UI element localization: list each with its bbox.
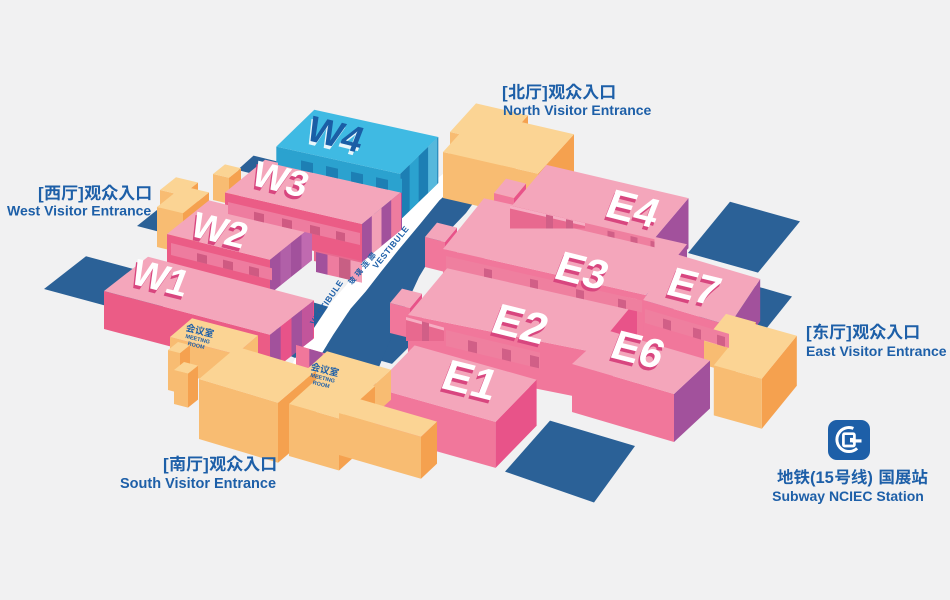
svg-text:North Visitor Entrance: North Visitor Entrance bbox=[503, 102, 652, 118]
svg-text:South Visitor Entrance: South Visitor Entrance bbox=[120, 476, 276, 492]
svg-text:[: [ bbox=[806, 323, 812, 342]
svg-text:]: ] bbox=[846, 323, 852, 342]
svg-text:]: ] bbox=[542, 83, 548, 102]
svg-text:): ) bbox=[867, 469, 873, 487]
svg-text:[: [ bbox=[38, 184, 44, 203]
svg-text:(15: (15 bbox=[810, 469, 834, 487]
svg-text:[: [ bbox=[502, 83, 508, 102]
svg-text:Subway NCIEC Station: Subway NCIEC Station bbox=[772, 488, 924, 504]
svg-text:]: ] bbox=[78, 184, 84, 203]
svg-text:East Visitor Entrance: East Visitor Entrance bbox=[806, 343, 947, 359]
svg-text:[: [ bbox=[163, 455, 169, 474]
svg-text:West Visitor Entrance: West Visitor Entrance bbox=[7, 203, 151, 219]
svg-text:]: ] bbox=[203, 455, 209, 474]
